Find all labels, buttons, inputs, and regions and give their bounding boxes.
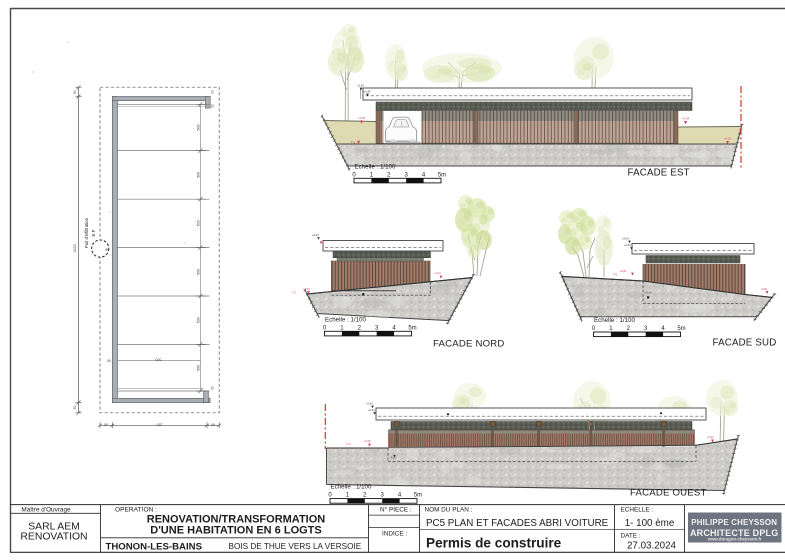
svg-text:NOM DU PLAN :: NOM DU PLAN : [425,506,473,513]
svg-text:Maître d'Ouvrage: Maître d'Ouvrage [21,506,71,513]
svg-text:3: 3 [375,325,379,331]
svg-text:5m: 5m [677,326,685,332]
svg-text:Echelle : 1/100: Echelle : 1/100 [325,316,366,323]
svg-text:BOIS DE THUE VERS LA VERSOIE: BOIS DE THUE VERS LA VERSOIE [229,542,362,551]
svg-text:500: 500 [196,269,200,275]
svg-text:2: 2 [387,172,391,178]
svg-text:0: 0 [323,325,327,331]
svg-text:4: 4 [422,172,426,178]
svg-text:5m: 5m [414,493,422,499]
svg-text:+0.32: +0.32 [724,137,732,141]
svg-text:+0.00: +0.00 [620,269,627,273]
svg-text:+1.24: +1.24 [434,271,441,275]
svg-text:+2.64: +2.64 [312,233,319,237]
svg-text:T N: T N [351,140,356,144]
svg-text:0: 0 [592,326,596,332]
svg-text:27.03.2024: 27.03.2024 [627,540,677,551]
svg-text:3: 3 [405,172,409,178]
svg-text:5m: 5m [438,172,446,178]
svg-text:+0.00: +0.00 [364,439,371,443]
svg-text:+0.00: +0.00 [761,287,768,291]
svg-text:T N: T N [613,273,618,277]
svg-text:2: 2 [363,493,367,499]
svg-text:-0.30: -0.30 [390,457,396,460]
svg-text:60: 60 [73,406,77,410]
svg-text:1: 1 [346,493,350,499]
svg-text:FACADE NORD: FACADE NORD [433,339,505,350]
svg-text:THONON-LES-BAINS: THONON-LES-BAINS [106,541,203,552]
svg-text:Echelle : 1/100: Echelle : 1/100 [331,484,372,491]
svg-text:RENOVATION: RENOVATION [20,532,87,543]
svg-text:60: 60 [211,422,215,426]
svg-text:500: 500 [196,365,200,371]
svg-text:60: 60 [73,90,77,94]
svg-text:+2.44: +2.44 [368,408,375,412]
svg-text:Puit d'infiltration: Puit d'infiltration [84,217,89,248]
svg-text:www.duragon-cheysson.fr: www.duragon-cheysson.fr [707,537,762,542]
svg-text:3: 3 [644,326,648,332]
svg-text:ECHELLE :: ECHELLE : [621,506,654,513]
svg-text:0: 0 [328,493,332,499]
svg-text:1620: 1620 [73,244,77,252]
svg-text:20: 20 [211,90,215,94]
svg-text:FACADE SUD: FACADE SUD [713,338,777,349]
svg-text:+2.64: +2.64 [357,84,364,88]
svg-text:500: 500 [196,172,200,178]
svg-text:+0.32: +0.32 [707,435,714,439]
svg-text:+2.44: +2.44 [364,90,371,94]
svg-text:2: 2 [627,326,631,332]
svg-text:20: 20 [211,386,215,390]
svg-text:FACADE EST: FACADE EST [628,168,690,179]
svg-text:1: 1 [340,325,344,331]
svg-text:1- 100 ème: 1- 100 ème [625,518,675,529]
svg-text:Echelle : 1/100: Echelle : 1/100 [594,317,635,324]
svg-text:DATE :: DATE : [621,532,641,539]
svg-text:500: 500 [196,220,200,226]
svg-text:PC5 PLAN ET FACADES ABRI VOITU: PC5 PLAN ET FACADES ABRI VOITURE [426,518,609,529]
svg-text:+0.64: +0.64 [682,117,690,121]
svg-text:+0.00: +0.00 [358,116,366,120]
svg-text:1: 1 [370,172,374,178]
svg-text:505: 505 [156,358,162,362]
svg-text:T N: T N [346,442,351,446]
svg-text:4: 4 [398,493,402,499]
svg-text:20: 20 [211,104,215,108]
svg-text:+2.44: +2.44 [624,243,631,247]
svg-text:FACADE OUEST: FACADE OUEST [630,488,707,499]
svg-text:0: 0 [352,172,356,178]
svg-text:D'UNE HABITATION EN 6 LOGTS: D'UNE HABITATION EN 6 LOGTS [150,525,322,537]
svg-text:90: 90 [107,359,111,363]
svg-text:1: 1 [609,326,613,332]
svg-text:OPERATION :: OPERATION : [115,507,157,514]
svg-text:N° PIECE :: N° PIECE : [380,505,412,513]
svg-text:5m: 5m [408,325,416,331]
svg-text:60: 60 [104,422,108,426]
svg-text:4: 4 [661,326,665,332]
svg-text:500: 500 [196,317,200,323]
svg-text:2: 2 [358,325,362,331]
svg-text:4: 4 [392,325,396,331]
svg-text:INDICE :: INDICE : [382,531,407,538]
svg-text:500: 500 [196,124,200,130]
svg-text:7 5: 7 5 [292,291,296,295]
svg-text:Echelle : 1/100: Echelle : 1/100 [355,163,396,170]
svg-text:3: 3 [381,493,385,499]
svg-text:Permis de construire: Permis de construire [426,536,562,551]
svg-text:PHILIPPE CHEYSSON: PHILIPPE CHEYSSON [691,518,777,527]
svg-text:+0.00: +0.00 [303,287,310,291]
svg-text:+2.64: +2.64 [366,402,373,406]
svg-text:+2.64: +2.64 [622,237,629,241]
svg-text:E.P: E.P [91,229,96,236]
svg-text:520: 520 [157,422,163,426]
svg-text:+0.30: +0.30 [645,292,652,295]
